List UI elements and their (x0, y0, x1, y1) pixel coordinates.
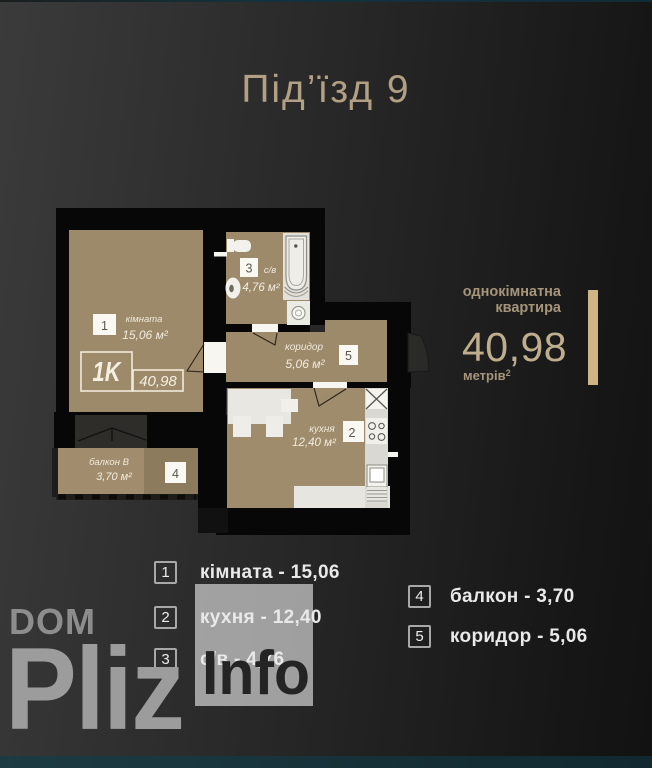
svg-text:3: 3 (246, 262, 253, 276)
svg-text:балкон В: балкон В (89, 457, 130, 468)
svg-text:40,98: 40,98 (139, 373, 177, 390)
svg-text:1: 1 (101, 319, 108, 333)
svg-text:12,40 м²: 12,40 м² (292, 437, 337, 449)
svg-text:коридор: коридор (285, 342, 323, 353)
svg-text:4,76 м²: 4,76 м² (242, 282, 280, 294)
svg-text:кухня: кухня (309, 424, 335, 435)
svg-text:3,70 м²: 3,70 м² (96, 471, 132, 483)
svg-text:кімната: кімната (126, 314, 163, 325)
svg-text:1K: 1K (93, 356, 123, 387)
svg-text:5,06 м²: 5,06 м² (286, 357, 326, 371)
svg-text:с/в: с/в (264, 265, 276, 276)
svg-text:2: 2 (349, 426, 356, 440)
svg-text:15,06 м²: 15,06 м² (122, 328, 169, 342)
svg-text:4: 4 (172, 467, 179, 481)
svg-text:5: 5 (345, 349, 352, 363)
